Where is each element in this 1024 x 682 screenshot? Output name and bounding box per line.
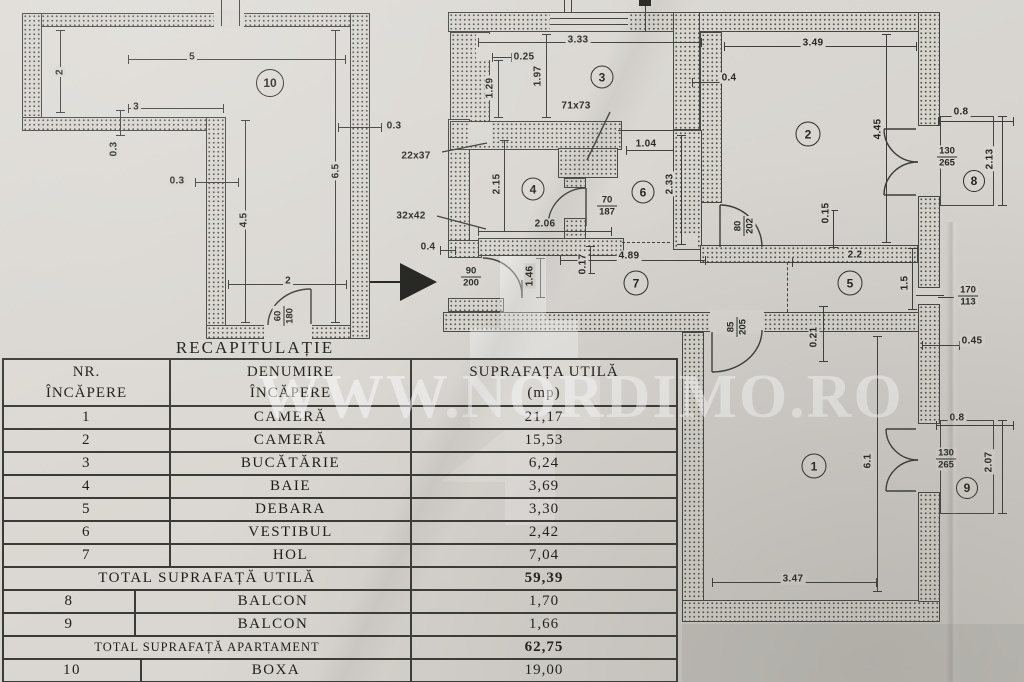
polygon-shape [400, 263, 437, 301]
fb: 200 [461, 277, 481, 289]
fb: 113 [958, 296, 978, 308]
dimension-label: 22x37 [399, 151, 432, 162]
scanned-floor-plan-document: 5230.30.30.36.54.523.330.251.291.9771x73… [0, 0, 1024, 682]
door-size-label: 60180 [273, 306, 296, 326]
dimension-label: 5 [187, 52, 197, 63]
room-number-10: 10 [256, 69, 284, 97]
cell-total-label: TOTAL SUPRAFAȚĂ APARTAMENT [4, 637, 410, 658]
table-row-total: TOTAL SUPRAFAȚĂ UTILĂ59,39 [4, 566, 676, 589]
dimension-label: 1.97 [533, 64, 544, 89]
cell-area: 7,04 [410, 545, 676, 566]
ft: 60 [273, 306, 284, 326]
table-row-total: TOTAL SUPRAFAȚĂ APARTAMENT62,75 [4, 635, 676, 658]
cell-name: BOXA [140, 660, 410, 681]
dimension-label: 2.07 [984, 450, 995, 475]
ft: 170 [958, 285, 978, 296]
fb: 265 [936, 459, 956, 471]
cell-area: 15,53 [410, 430, 676, 451]
table-row-10: 10BOXA19,00 [4, 658, 676, 681]
h2: SUPRAFAȚA UTILĂ [469, 362, 618, 382]
cell-total-label: TOTAL SUPRAFAȚĂ UTILĂ [4, 568, 410, 589]
dimension-label: 0.25 [512, 52, 537, 63]
table-row-1: 1CAMERĂ21,17 [4, 405, 676, 428]
dimension-label: 0.45 [960, 336, 985, 347]
cell-area: 6,24 [410, 453, 676, 474]
cell-name: VESTIBUL [169, 522, 410, 543]
dimension-label: 0.3 [109, 140, 120, 159]
h2: ÎNCĂPERE [46, 383, 127, 403]
dimension-label: 0.15 [821, 201, 832, 226]
dimension-label: 4.5 [239, 211, 250, 230]
fb: 187 [597, 206, 617, 218]
dimension-label: 32x42 [394, 211, 427, 222]
dimension-label: 2 [283, 276, 293, 287]
fb: 202 [744, 216, 756, 236]
room-number-1: 1 [802, 454, 827, 479]
room-number-9: 9 [956, 477, 978, 499]
room-number-7: 7 [624, 271, 649, 296]
dimension-label: 3.33 [566, 35, 591, 46]
door-arc-balcony9-b [886, 460, 918, 491]
cell-area: 2,42 [410, 522, 676, 543]
dimension-label: 2 [55, 67, 66, 77]
table-header-col1: NR.ÎNCĂPERE [4, 360, 169, 405]
trow: NR.ÎNCĂPEREDENUMIREÎNCĂPERESUPRAFAȚA UTI… [4, 360, 676, 405]
cell-name: BALCON [134, 614, 410, 635]
ft: 130 [937, 146, 957, 157]
fb: 205 [737, 317, 749, 337]
door-size-label: 90200 [461, 266, 481, 289]
dimension-label: 4.45 [873, 117, 884, 142]
entry-arrow-icon [370, 263, 437, 301]
ft: 130 [936, 448, 956, 459]
table-row-6: 6VESTIBUL2,42 [4, 520, 676, 543]
dimension-label: 0.8 [952, 107, 971, 118]
cell-nr: 5 [4, 499, 169, 520]
door-size-label: 70187 [597, 195, 617, 218]
cell-area: 1,70 [410, 591, 676, 612]
ft: 90 [461, 266, 481, 277]
dimension-label: 0.21 [809, 325, 820, 350]
room-number-4: 4 [522, 178, 545, 201]
door-arc-balcony8-a [884, 129, 918, 162]
dimension-label: 0.3 [385, 121, 404, 132]
cell-nr: 3 [4, 453, 169, 474]
leader-32x42 [437, 216, 486, 229]
door-size-label: 130265 [937, 146, 957, 169]
cell-nr: 1 [4, 407, 169, 428]
cell-nr: 10 [4, 660, 140, 681]
door-size-label: 130265 [936, 448, 956, 471]
dimension-label: 6.1 [863, 452, 874, 471]
dimension-label: 3.49 [801, 38, 826, 49]
cell-nr: 8 [4, 591, 134, 612]
door-size-label: 80202 [733, 216, 756, 236]
cell-nr: 6 [4, 522, 169, 543]
cell-name: DEBARA [169, 499, 410, 520]
dimension-label: 3.47 [781, 574, 806, 585]
cell-total-area: 59,39 [410, 568, 676, 589]
table-row-3: 3BUCĂTĂRIE6,24 [4, 451, 676, 474]
h2: ÎNCĂPERE [250, 383, 331, 403]
table-row-9: 9BALCON1,66 [4, 612, 676, 635]
dimension-label: 71x73 [559, 101, 592, 112]
dimension-label: 2.15 [492, 172, 503, 197]
cell-area: 3,30 [410, 499, 676, 520]
room-number-5: 5 [838, 271, 863, 296]
dimension-label: 1.46 [525, 264, 536, 289]
cell-nr: 2 [4, 430, 169, 451]
table-row-2: 2CAMERĂ15,53 [4, 428, 676, 451]
ft: 85 [726, 317, 737, 337]
dimension-label: 2.2 [846, 250, 865, 261]
door-arc-balcony9-a [886, 429, 918, 460]
ft: 70 [597, 195, 617, 206]
room-number-3: 3 [591, 66, 614, 89]
cell-total-area: 62,75 [410, 637, 676, 658]
table-row-8: 8BALCON1,70 [4, 589, 676, 612]
table-row-5: 5DEBARA3,30 [4, 497, 676, 520]
table-row-7: 7HOL7,04 [4, 543, 676, 566]
dimension-label: 0.4 [720, 73, 739, 84]
h2: NR. [73, 362, 101, 382]
dimension-label: 1.5 [900, 274, 911, 293]
cell-name: HOL [169, 545, 410, 566]
cell-name: CAMERĂ [169, 430, 410, 451]
cell-name: BALCON [134, 591, 410, 612]
room-number-6: 6 [632, 181, 655, 204]
room-number-8: 8 [963, 170, 985, 192]
dimension-label: 1.29 [485, 76, 496, 101]
dimension-label: 4.89 [617, 251, 642, 262]
cell-nr: 7 [4, 545, 169, 566]
dimension-label: 6.5 [331, 162, 342, 181]
leader-22x37 [442, 143, 487, 152]
cell-name: BAIE [169, 476, 410, 497]
fb: 180 [284, 306, 296, 326]
cell-nr: 4 [4, 476, 169, 497]
ft: 80 [733, 216, 744, 236]
dimension-label: 0.4 [419, 242, 438, 253]
table-title: RECAPITULAȚIE [95, 338, 415, 358]
door-size-label: 85205 [726, 317, 749, 337]
dimension-label: 2.33 [665, 172, 676, 197]
cell-name: CAMERĂ [169, 407, 410, 428]
recap-table: NR.ÎNCĂPEREDENUMIREÎNCĂPERESUPRAFAȚA UTI… [2, 358, 678, 682]
cell-area: 3,69 [410, 476, 676, 497]
room-number-2: 2 [796, 122, 821, 147]
h2: (mp) [527, 383, 560, 403]
dimension-label: 2.13 [985, 147, 996, 172]
table-header-col3: SUPRAFAȚA UTILĂ(mp) [410, 360, 676, 405]
dimension-label: 0.3 [168, 176, 187, 187]
cell-nr: 9 [4, 614, 134, 635]
dimension-label: 1.04 [634, 139, 659, 150]
table-header-col2: DENUMIREÎNCĂPERE [169, 360, 410, 405]
door-arc-balcony8-b [884, 162, 918, 195]
dimension-label: 3 [131, 102, 141, 113]
h2: DENUMIRE [247, 362, 334, 382]
cell-area: 19,00 [410, 660, 676, 681]
door-size-label: 170113 [958, 285, 978, 308]
leader-71x73 [587, 112, 610, 160]
cell-area: 21,17 [410, 407, 676, 428]
cell-area: 1,66 [410, 614, 676, 635]
dimension-label: 0.8 [948, 413, 967, 424]
table-row-4: 4BAIE3,69 [4, 474, 676, 497]
fb: 265 [937, 157, 957, 169]
dimension-label: 2.06 [533, 219, 558, 230]
cell-name: BUCĂTĂRIE [169, 453, 410, 474]
dimension-label: 0.17 [578, 252, 589, 277]
